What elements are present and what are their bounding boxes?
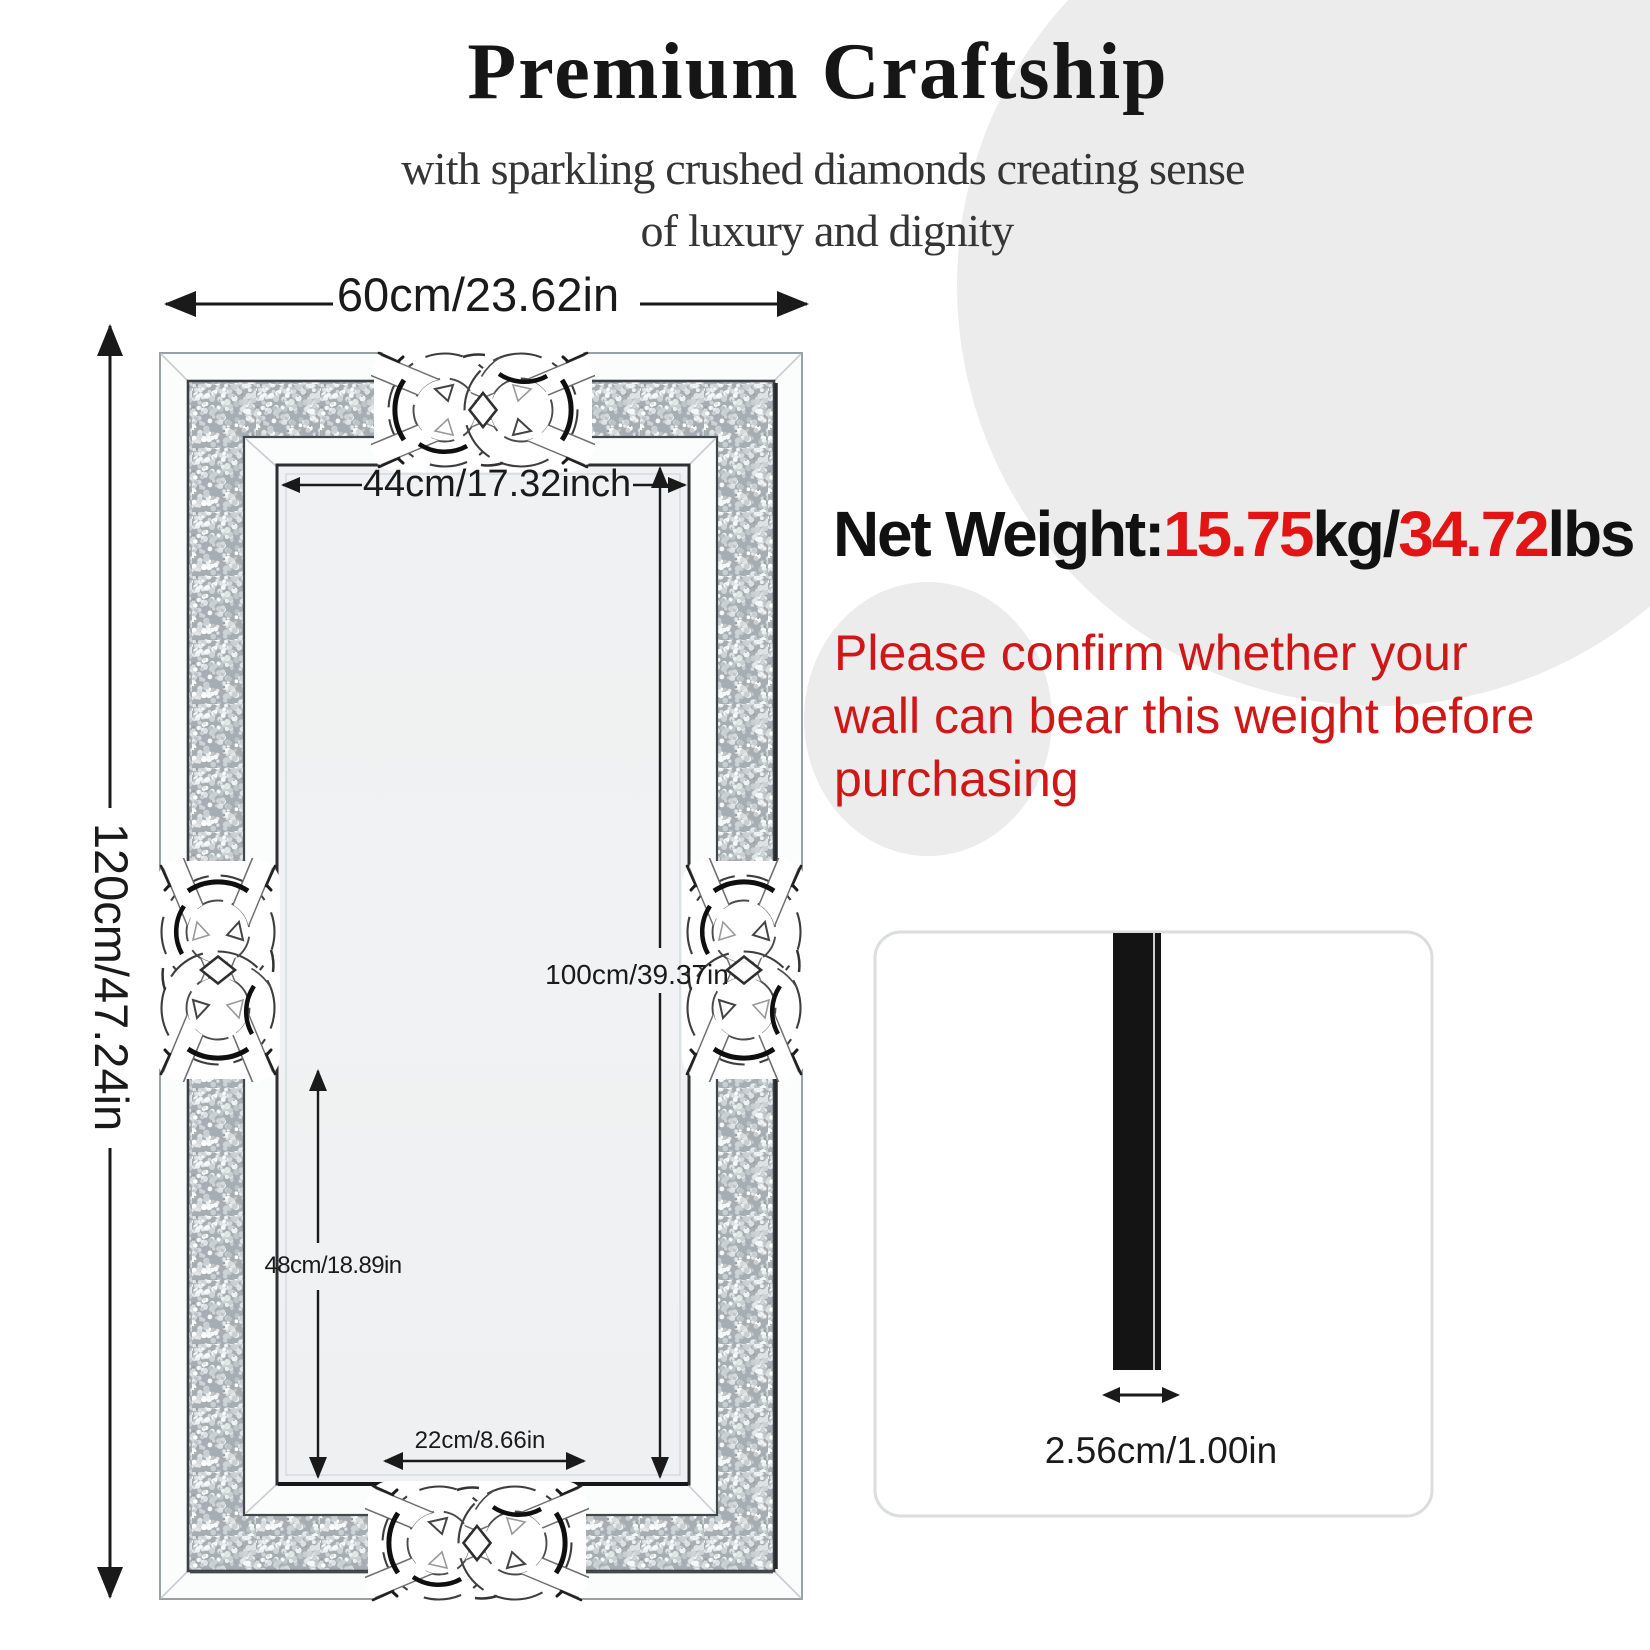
svg-text:Net Weight:15.75kg/34.72lbs: Net Weight:15.75kg/34.72lbs bbox=[833, 498, 1633, 570]
svg-text:of luxury and dignity: of luxury and dignity bbox=[641, 205, 1015, 256]
svg-text:60cm/23.62in: 60cm/23.62in bbox=[337, 268, 619, 321]
svg-text:120cm/47.24in: 120cm/47.24in bbox=[85, 823, 138, 1131]
svg-text:100cm/39.37in: 100cm/39.37in bbox=[545, 959, 729, 990]
svg-text:Please confirm whether your: Please confirm whether your bbox=[834, 625, 1468, 681]
svg-text:purchasing: purchasing bbox=[834, 751, 1079, 807]
svg-text:Premium Craftship: Premium Craftship bbox=[467, 28, 1168, 116]
svg-text:48cm/18.89in: 48cm/18.89in bbox=[265, 1252, 402, 1279]
svg-text:with sparkling crushed diamond: with sparkling crushed diamonds creating… bbox=[401, 143, 1244, 194]
svg-text:2.56cm/1.00in: 2.56cm/1.00in bbox=[1045, 1430, 1277, 1471]
svg-text:wall can bear this weight befo: wall can bear this weight before bbox=[833, 688, 1534, 744]
svg-text:44cm/17.32inch: 44cm/17.32inch bbox=[363, 463, 631, 505]
svg-text:22cm/8.66in: 22cm/8.66in bbox=[415, 1427, 546, 1454]
